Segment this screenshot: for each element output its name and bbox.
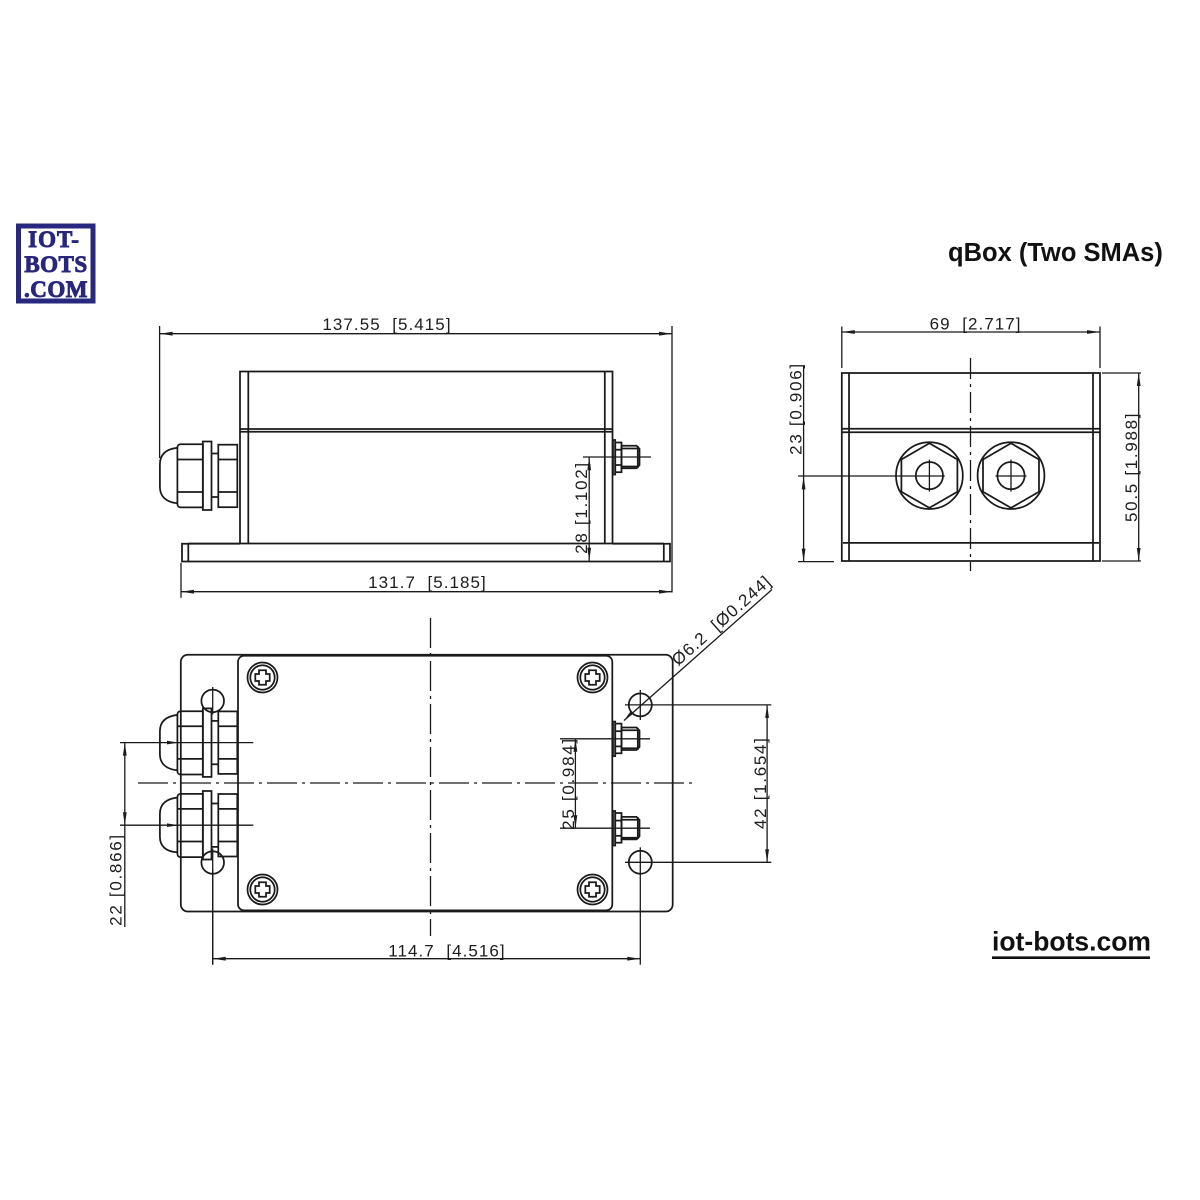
svg-text:42 [1.654]: 42 [1.654] xyxy=(751,736,770,829)
svg-text:131.7 [5.185]: 131.7 [5.185] xyxy=(368,573,487,592)
svg-text:69 [2.717]: 69 [2.717] xyxy=(930,315,1022,334)
svg-text:114.7 [4.516]: 114.7 [4.516] xyxy=(388,942,505,961)
svg-text:Ø6.2 [Ø0.244]: Ø6.2 [Ø0.244] xyxy=(668,572,775,670)
svg-text:IOT-: IOT- xyxy=(28,227,80,252)
svg-text:22 [0.866]: 22 [0.866] xyxy=(107,833,126,926)
svg-text:137.55 [5.415]: 137.55 [5.415] xyxy=(322,315,451,334)
svg-text:iot-bots.com: iot-bots.com xyxy=(992,927,1151,957)
svg-text:BOTS: BOTS xyxy=(24,252,87,277)
svg-text:28 [1.102]: 28 [1.102] xyxy=(572,461,591,554)
svg-text:.COM: .COM xyxy=(24,277,88,302)
svg-text:qBox (Two SMAs): qBox (Two SMAs) xyxy=(948,239,1163,267)
svg-text:50.5 [1.988]: 50.5 [1.988] xyxy=(1122,412,1141,522)
svg-text:25 [0.984]: 25 [0.984] xyxy=(559,737,578,830)
svg-text:23 [0.906]: 23 [0.906] xyxy=(787,362,806,455)
